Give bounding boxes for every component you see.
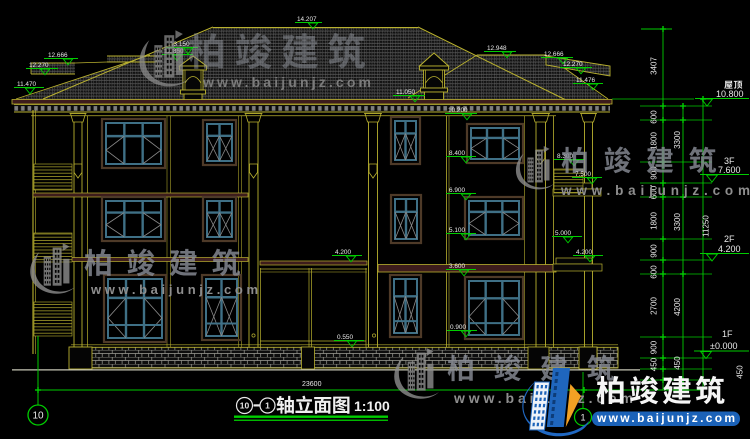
svg-text:600: 600 [650, 265, 659, 279]
svg-text:3300: 3300 [673, 131, 682, 149]
svg-text:11250: 11250 [702, 215, 711, 237]
svg-text:3407: 3407 [650, 57, 659, 75]
svg-text:1800: 1800 [650, 132, 659, 150]
svg-text:10: 10 [32, 411, 44, 422]
svg-text:900: 900 [650, 244, 659, 258]
svg-text:1:100: 1:100 [354, 398, 390, 414]
svg-text:2700: 2700 [650, 297, 659, 315]
svg-text:±0.000: ±0.000 [710, 341, 737, 351]
svg-text:1: 1 [580, 413, 585, 423]
svg-text:4.200: 4.200 [718, 244, 741, 254]
svg-text:450: 450 [736, 365, 745, 379]
svg-text:600: 600 [650, 110, 659, 124]
svg-text:450: 450 [673, 356, 682, 370]
svg-text:10.800: 10.800 [716, 89, 744, 99]
svg-text:1800: 1800 [650, 212, 659, 230]
svg-text:10: 10 [240, 401, 250, 411]
svg-text:7.600: 7.600 [718, 165, 741, 175]
svg-text:1: 1 [265, 401, 270, 411]
svg-text:4200: 4200 [673, 298, 682, 316]
svg-text:3300: 3300 [673, 213, 682, 231]
svg-text:450: 450 [650, 357, 659, 371]
svg-text:1F: 1F [722, 329, 733, 339]
svg-text:900: 900 [650, 340, 659, 354]
svg-text:23600: 23600 [302, 381, 322, 388]
svg-text:2F: 2F [724, 234, 735, 244]
